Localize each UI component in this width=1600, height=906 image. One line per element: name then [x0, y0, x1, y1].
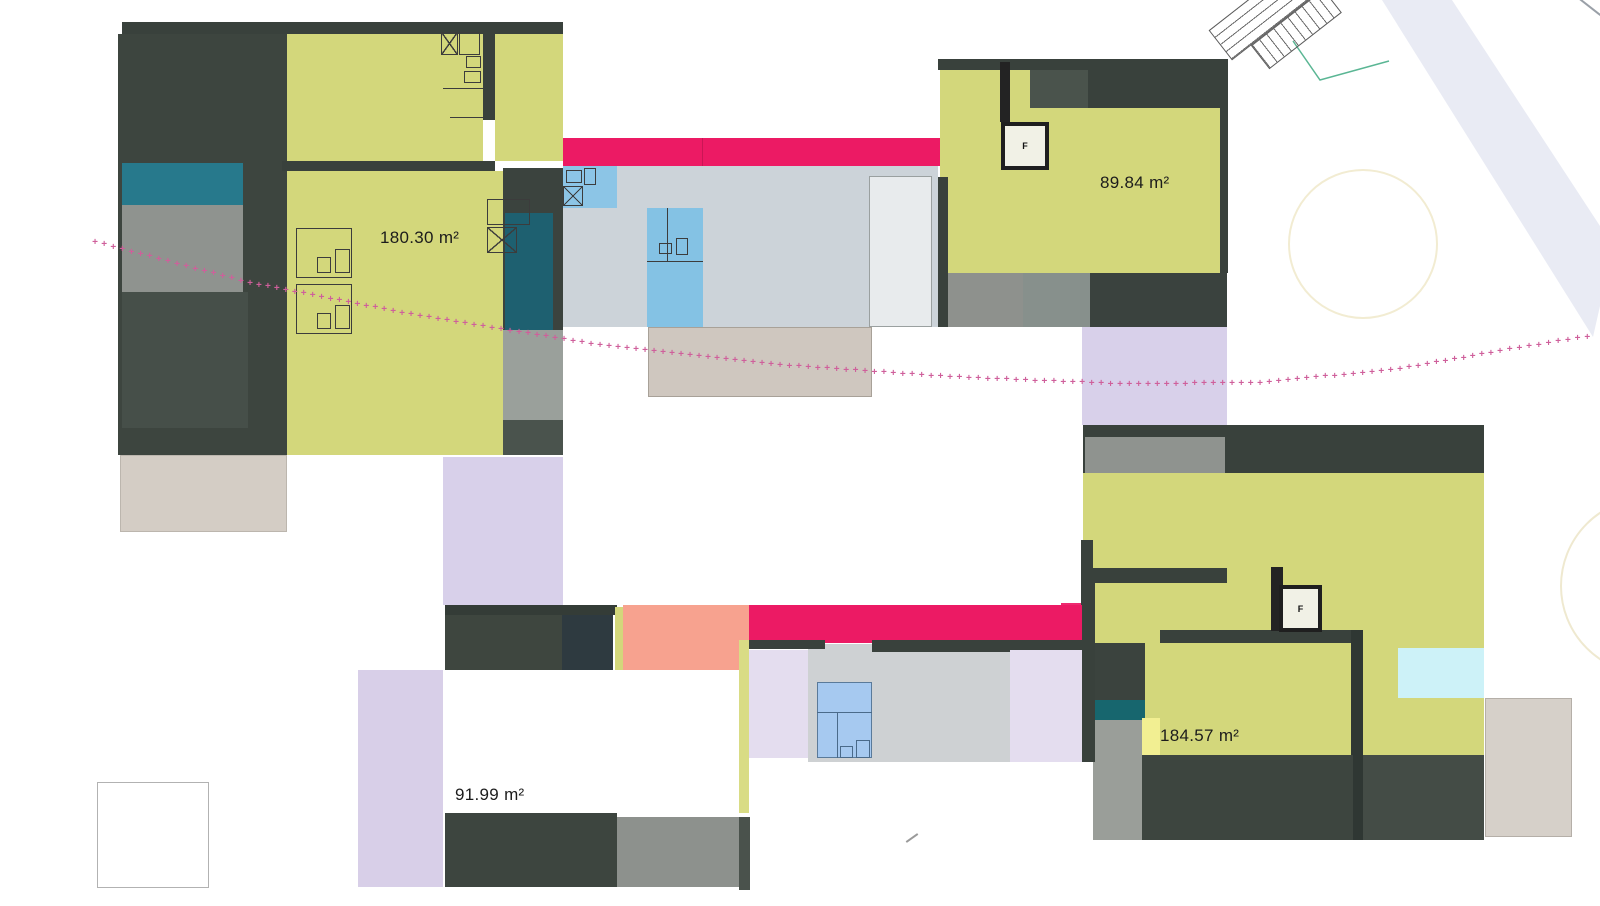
boundary-mark: +	[843, 366, 849, 376]
boundary-mark: +	[824, 364, 830, 374]
boundary-mark: +	[1452, 355, 1458, 365]
boundary-mark: +	[1136, 380, 1142, 390]
boundary-mark: +	[345, 298, 351, 308]
boundary-mark: +	[928, 372, 934, 382]
unit4-base-dark-a	[1142, 755, 1353, 840]
corridor-bottom-wall-right	[1082, 583, 1095, 762]
unit1-right-column-dark2	[503, 420, 563, 455]
boundary-mark: +	[796, 362, 802, 372]
boundary-mark: +	[579, 338, 585, 348]
boundary-mark: +	[900, 370, 906, 380]
boundary-mark: +	[426, 313, 432, 323]
boundary-mark: +	[938, 372, 944, 382]
boundary-mark: +	[444, 316, 450, 326]
boundary-mark: +	[1322, 372, 1328, 382]
boundary-mark: +	[1220, 379, 1226, 389]
boundary-mark: +	[1089, 379, 1095, 389]
unit1-wall-vertical	[483, 34, 495, 120]
corridor-top-magenta-bar	[563, 138, 940, 166]
boundary-mark: +	[606, 342, 612, 352]
boundary-mark: +	[1108, 380, 1114, 390]
counter-line	[450, 117, 483, 118]
boundary-mark: +	[354, 300, 360, 310]
boundary-mark: +	[372, 303, 378, 313]
boundary-mark: +	[651, 347, 657, 357]
unit3-base-dark	[445, 813, 617, 887]
boundary-mark: +	[552, 334, 558, 344]
elevator-icon: F	[1001, 122, 1049, 170]
unit4-top-gray	[1085, 437, 1225, 473]
boundary-mark: +	[498, 325, 504, 335]
boundary-mark: +	[110, 243, 116, 253]
boundary-mark: +	[101, 240, 107, 250]
boundary-mark: +	[1350, 370, 1356, 380]
unit1-right-column-gray	[503, 330, 563, 422]
unit4-terrace	[1485, 698, 1572, 837]
boundary-mark: +	[265, 282, 271, 292]
unit2-wall-right	[1220, 70, 1228, 273]
unit3-base-dark-sliver	[739, 817, 750, 890]
boundary-mark: +	[1565, 336, 1571, 346]
boundary-mark: +	[909, 370, 915, 380]
boundary-mark: +	[1584, 333, 1590, 343]
boundary-mark: +	[1332, 372, 1338, 382]
boundary-mark: +	[777, 361, 783, 371]
boundary-mark: +	[890, 369, 896, 379]
boundary-mark: +	[1294, 375, 1300, 385]
boundary-mark: +	[723, 355, 729, 365]
unit3-base-gray	[617, 817, 739, 887]
elevator-icon: F	[1279, 585, 1322, 632]
unit2-base-gray-a	[948, 273, 1023, 327]
boundary-mark: +	[615, 343, 621, 353]
sink-icon	[659, 243, 672, 254]
boundary-mark: +	[1042, 377, 1048, 387]
appliance-icon	[584, 168, 596, 185]
unit1-area-label: 180.30 m²	[380, 228, 459, 248]
boundary-mark: +	[853, 366, 859, 376]
unit2-wall-left	[938, 177, 948, 327]
boundary-mark: +	[705, 353, 711, 363]
boundary-mark: +	[750, 358, 756, 368]
unit2-lavender-court	[1082, 327, 1227, 425]
boundary-mark: +	[1145, 380, 1151, 390]
boundary-mark: +	[381, 305, 387, 315]
boundary-mark: +	[147, 252, 153, 262]
boundary-mark: +	[678, 350, 684, 360]
boundary-mark: +	[274, 284, 280, 294]
boundary-mark: +	[741, 357, 747, 367]
floor-plan-canvas: 180.30 m² F 89.84 m² F 184.57 m²	[0, 0, 1600, 906]
boundary-mark: +	[399, 309, 405, 319]
boundary-mark: +	[319, 293, 325, 303]
boundary-mark: +	[919, 371, 925, 381]
boundary-mark: +	[994, 375, 1000, 385]
boundary-mark: +	[1461, 354, 1467, 364]
boundary-mark: +	[1229, 379, 1235, 389]
boundary-mark: +	[92, 238, 98, 248]
boundary-mark: +	[966, 374, 972, 384]
boundary-mark: +	[408, 310, 414, 320]
boundary-mark: +	[301, 289, 307, 299]
unit2-dark-band-b	[1088, 70, 1228, 108]
shaft-icon	[487, 227, 517, 253]
boundary-mark: +	[1443, 357, 1449, 367]
boundary-mark: +	[561, 335, 567, 345]
boundary-mark: +	[1117, 380, 1123, 390]
corridor-top-joint-line	[702, 138, 703, 166]
boundary-mark: +	[1546, 339, 1552, 349]
boundary-mark: +	[1051, 377, 1057, 387]
boundary-mark: +	[1285, 376, 1291, 386]
corridor-bottom-wall-a	[749, 640, 825, 649]
corridor-bottom-lavender-left	[749, 650, 808, 758]
counter-line	[443, 88, 483, 89]
boundary-mark: +	[834, 365, 840, 375]
unit1-terrace	[120, 455, 287, 532]
boundary-mark: +	[310, 291, 316, 301]
boundary-mark: +	[525, 329, 531, 339]
unit4-area-label: 184.57 m²	[1160, 726, 1239, 746]
boundary-mark: +	[156, 255, 162, 265]
boundary-mark: +	[1369, 368, 1375, 378]
unit1-lavender-court	[443, 457, 563, 605]
boundary-mark: +	[1004, 375, 1010, 385]
boundary-mark: +	[1575, 334, 1581, 344]
appliance-icon	[459, 32, 480, 55]
boundary-mark: +	[947, 373, 953, 383]
boundary-mark: +	[1238, 379, 1244, 389]
unit4-wall-h1	[1093, 568, 1227, 583]
boundary-mark: +	[489, 324, 495, 334]
site-circle-outline	[1288, 169, 1438, 319]
boundary-mark: +	[1182, 380, 1188, 390]
boundary-mark: +	[1032, 377, 1038, 387]
unit3-dark-band-edge	[445, 605, 617, 615]
boundary-mark: +	[1415, 362, 1421, 372]
boundary-mark: +	[363, 302, 369, 312]
boundary-mark: +	[1397, 365, 1403, 375]
boundary-mark: +	[1360, 369, 1366, 379]
boundary-mark: +	[1488, 349, 1494, 359]
boundary-mark: +	[1248, 379, 1254, 389]
boundary-mark: +	[283, 286, 289, 296]
sink-icon	[464, 71, 481, 83]
partition-line	[817, 712, 872, 713]
boundary-mark: +	[1164, 380, 1170, 390]
boundary-mark: +	[1378, 367, 1384, 377]
unit2-base-gray-b	[1023, 273, 1090, 327]
boundary-mark: +	[1173, 380, 1179, 390]
boundary-mark: +	[480, 322, 486, 332]
boundary-mark: +	[696, 352, 702, 362]
boundary-mark: +	[328, 295, 334, 305]
boundary-mark: +	[1154, 380, 1160, 390]
unit4-wall-h2	[1160, 630, 1363, 643]
boundary-mark: +	[165, 257, 171, 267]
boundary-mark: +	[1070, 378, 1076, 388]
unit1-top-bar	[122, 22, 563, 34]
toilet-icon	[840, 746, 853, 758]
unit4-elevator-letter: F	[1298, 604, 1304, 614]
boundary-mark: +	[985, 375, 991, 385]
boundary-mark: +	[1313, 373, 1319, 383]
boundary-mark: +	[229, 274, 235, 284]
boundary-mark: +	[337, 296, 343, 306]
boundary-mark: +	[201, 267, 207, 277]
boundary-mark: +	[256, 281, 262, 291]
unit1-teal-band	[122, 163, 243, 205]
partition-line	[667, 208, 668, 261]
boundary-mark: +	[1013, 376, 1019, 386]
boundary-mark: +	[1470, 352, 1476, 362]
boundary-mark: +	[119, 245, 125, 255]
unit2-top-bar	[938, 59, 1228, 70]
boundary-mark: +	[881, 368, 887, 378]
corridor-top-wet-cell-b	[647, 208, 703, 327]
boundary-mark: +	[129, 248, 135, 258]
boundary-mark: +	[174, 260, 180, 270]
boundary-mark: +	[543, 332, 549, 342]
boundary-mark: +	[759, 359, 765, 369]
boundary-mark: +	[642, 346, 648, 356]
boundary-mark: +	[1526, 342, 1532, 352]
boundary-mark: +	[957, 373, 963, 383]
boundary-mark: +	[1266, 378, 1272, 388]
boundary-mark: +	[1023, 376, 1029, 386]
unit3-chartreuse-strip-b	[739, 640, 749, 813]
boundary-mark: +	[471, 321, 477, 331]
boundary-mark: +	[183, 262, 189, 272]
boundary-mark: +	[872, 368, 878, 378]
unit1-room-top-right	[495, 34, 563, 161]
unit2-dark-band-a	[1030, 70, 1088, 108]
boundary-mark: +	[633, 345, 639, 355]
unit2-elevator-letter: F	[1022, 141, 1028, 151]
boundary-mark: +	[462, 319, 468, 329]
boundary-mark: +	[815, 364, 821, 374]
boundary-mark: +	[732, 356, 738, 366]
boundary-mark: +	[1555, 337, 1561, 347]
boundary-mark: +	[1060, 378, 1066, 388]
unit3-salmon-room	[623, 605, 749, 670]
boundary-mark: +	[1126, 380, 1132, 390]
boundary-mark: +	[1433, 358, 1439, 368]
shaft-icon	[563, 186, 583, 206]
boundary-mark: +	[247, 279, 253, 289]
toilet-icon	[856, 740, 870, 758]
partition-line	[837, 712, 838, 758]
boundary-mark: +	[1497, 347, 1503, 357]
appliance-icon	[566, 170, 582, 183]
unit2-area-label: 89.84 m²	[1100, 173, 1170, 193]
boundary-mark: +	[1516, 344, 1522, 354]
boundary-mark: +	[507, 327, 513, 337]
corridor-bottom-magenta-bar	[749, 605, 1083, 643]
boundary-mark: +	[597, 341, 603, 351]
unit3-chartreuse-strip-a	[615, 607, 623, 670]
boundary-mark: +	[238, 277, 244, 287]
boundary-mark: +	[1304, 374, 1310, 384]
boundary-mark: +	[1098, 379, 1104, 389]
boundary-mark: +	[687, 351, 693, 361]
boundary-mark: +	[787, 362, 793, 372]
unit3-lavender-court	[358, 670, 443, 887]
unit1-dark-wing-inner	[122, 292, 248, 428]
boundary-mark: +	[1201, 379, 1207, 389]
corridor-top-light-room	[869, 176, 932, 327]
boundary-mark: +	[570, 337, 576, 347]
boundary-mark: +	[768, 360, 774, 370]
boundary-mark: +	[669, 349, 675, 359]
unit2-elevator-wall	[1000, 62, 1010, 122]
boundary-mark: +	[1479, 350, 1485, 360]
boundary-mark: +	[588, 340, 594, 350]
boundary-mark: +	[862, 367, 868, 377]
boundary-mark: +	[1341, 371, 1347, 381]
boundary-mark: +	[1079, 378, 1085, 388]
unit3-area-label: 91.99 m²	[455, 785, 525, 805]
boundary-mark: +	[516, 328, 522, 338]
boundary-mark: +	[624, 344, 630, 354]
unit1-wall-horizontal	[282, 161, 495, 171]
partition-line	[647, 261, 703, 262]
sink-icon	[466, 56, 481, 68]
counter-icon	[487, 199, 530, 225]
washer-icon	[441, 32, 458, 55]
unit2-base-dark	[1090, 273, 1227, 327]
boundary-mark: +	[390, 307, 396, 317]
boundary-mark: +	[417, 312, 423, 322]
boundary-mark: +	[453, 318, 459, 328]
boundary-mark: +	[1192, 379, 1198, 389]
boundary-mark: +	[975, 374, 981, 384]
boundary-mark: +	[714, 354, 720, 364]
boundary-mark: +	[1424, 360, 1430, 370]
boundary-mark: +	[138, 250, 144, 260]
boundary-mark: +	[534, 331, 540, 341]
boundary-mark: +	[1536, 341, 1542, 351]
boundary-mark: +	[192, 265, 198, 275]
boundary-mark: +	[805, 363, 811, 373]
unit4-pale-cyan-patch	[1398, 648, 1484, 698]
boundary-mark: +	[292, 288, 298, 298]
site-plot-outline	[97, 782, 209, 888]
boundary-mark: +	[1257, 379, 1263, 389]
boundary-mark: +	[1210, 379, 1216, 389]
boundary-mark: +	[211, 269, 217, 279]
boundary-mark: +	[220, 272, 226, 282]
boundary-mark: +	[660, 348, 666, 358]
boundary-mark: +	[1406, 363, 1412, 373]
boundary-mark: +	[1388, 366, 1394, 376]
kitchen-counter-icon	[296, 228, 352, 278]
sink-icon	[676, 238, 688, 255]
unit4-base-dark-b	[1363, 755, 1484, 840]
boundary-mark: +	[435, 315, 441, 325]
boundary-mark: +	[1276, 377, 1282, 387]
corridor-bottom-lavender-right	[1010, 650, 1082, 762]
unit4-yellow-patch	[1142, 718, 1160, 757]
boundary-mark: +	[1507, 345, 1513, 355]
